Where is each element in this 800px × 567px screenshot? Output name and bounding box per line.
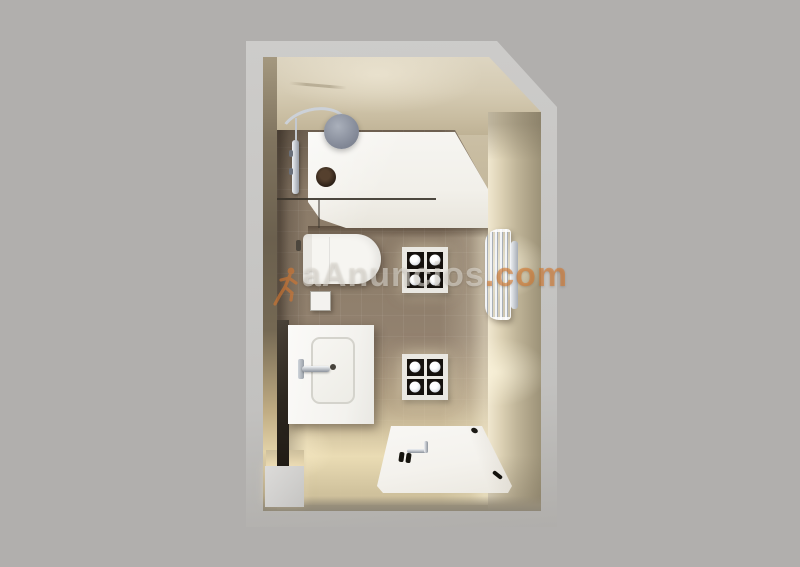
shower-valve xyxy=(289,150,293,157)
radiator-mount xyxy=(511,241,518,309)
storage-box xyxy=(310,291,331,311)
toilet xyxy=(303,234,381,284)
glass-partition xyxy=(277,198,436,200)
bathroom-render: aAnuncios.com xyxy=(0,0,800,567)
bottom-wall-face xyxy=(263,496,541,511)
spotlight xyxy=(407,379,424,396)
shower-column xyxy=(292,140,299,194)
floor-drain xyxy=(316,167,336,187)
left-wall-face xyxy=(263,57,277,511)
spotlight xyxy=(427,272,444,289)
spotlight xyxy=(407,252,424,269)
toilet-wall-fixture xyxy=(296,240,301,251)
radiator-coils xyxy=(485,229,511,320)
shower-valve xyxy=(289,168,293,175)
shower-head xyxy=(324,114,359,149)
spotlight xyxy=(427,252,444,269)
spotlight xyxy=(407,272,424,289)
basin-drain xyxy=(330,364,336,370)
bathtub-faucet-riser xyxy=(424,441,428,453)
spotlight-panel-lower xyxy=(402,354,448,400)
basin-faucet xyxy=(302,366,330,372)
towel-radiator xyxy=(485,229,518,320)
wall-notch xyxy=(265,466,304,507)
spotlight xyxy=(427,359,444,376)
spotlight xyxy=(407,359,424,376)
spotlight xyxy=(427,379,444,396)
glass-partition-return xyxy=(318,200,320,228)
spotlight-panel-upper xyxy=(402,247,448,293)
